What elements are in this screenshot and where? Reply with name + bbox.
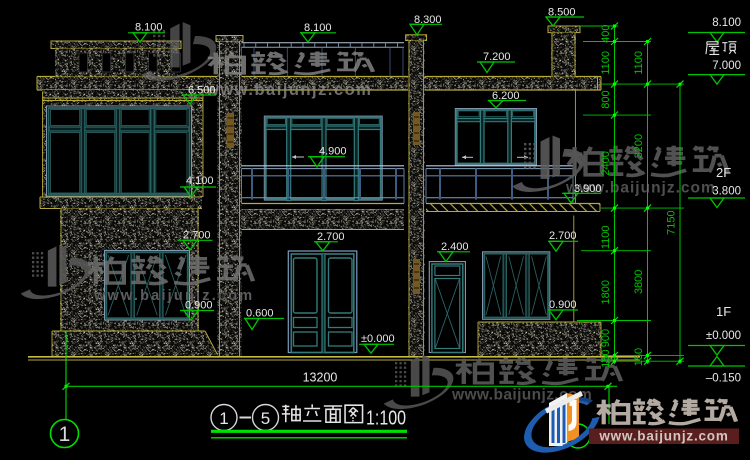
svg-text:1100: 1100 xyxy=(600,225,612,249)
svg-text:900: 900 xyxy=(600,329,612,347)
svg-text:1800: 1800 xyxy=(600,280,612,304)
svg-text:1:100: 1:100 xyxy=(366,407,406,430)
svg-text:7150: 7150 xyxy=(666,210,678,234)
svg-text:www.baijunjz.com: www.baijunjz.com xyxy=(93,288,254,304)
svg-text:0.900: 0.900 xyxy=(185,300,213,312)
svg-text:www.baijunjz.com: www.baijunjz.com xyxy=(205,81,372,99)
svg-text:2400: 2400 xyxy=(600,151,612,175)
svg-text:±0.000: ±0.000 xyxy=(361,333,395,345)
svg-text:www.baijunjz.com: www.baijunjz.com xyxy=(598,429,728,444)
svg-text:1: 1 xyxy=(219,409,228,428)
svg-text:3.800: 3.800 xyxy=(712,186,741,198)
svg-text:8.100: 8.100 xyxy=(135,22,163,34)
svg-text:2F: 2F xyxy=(716,165,731,180)
svg-text:0.600: 0.600 xyxy=(246,308,274,320)
svg-text:0.900: 0.900 xyxy=(549,299,577,311)
svg-text:13200: 13200 xyxy=(303,371,338,385)
svg-text:7.200: 7.200 xyxy=(483,51,511,63)
svg-text:5: 5 xyxy=(261,409,270,428)
svg-text:±0.000: ±0.000 xyxy=(706,330,741,342)
svg-text:1F: 1F xyxy=(716,304,731,319)
svg-text:7.000: 7.000 xyxy=(712,60,741,72)
svg-text:1100: 1100 xyxy=(600,51,612,75)
svg-text:8.100: 8.100 xyxy=(712,17,741,29)
svg-text:3200: 3200 xyxy=(633,134,645,158)
svg-text:150: 150 xyxy=(600,349,612,367)
svg-text:400: 400 xyxy=(600,25,612,43)
svg-text:800: 800 xyxy=(600,90,612,108)
svg-text:4.900: 4.900 xyxy=(319,146,347,158)
svg-text:150: 150 xyxy=(633,348,645,366)
svg-text:4.100: 4.100 xyxy=(186,175,214,187)
svg-text:–0.150: –0.150 xyxy=(706,373,741,385)
svg-text:3800: 3800 xyxy=(633,270,645,294)
svg-text:1100: 1100 xyxy=(633,51,645,75)
svg-text:1: 1 xyxy=(59,423,71,446)
svg-text:2.700: 2.700 xyxy=(549,230,577,242)
